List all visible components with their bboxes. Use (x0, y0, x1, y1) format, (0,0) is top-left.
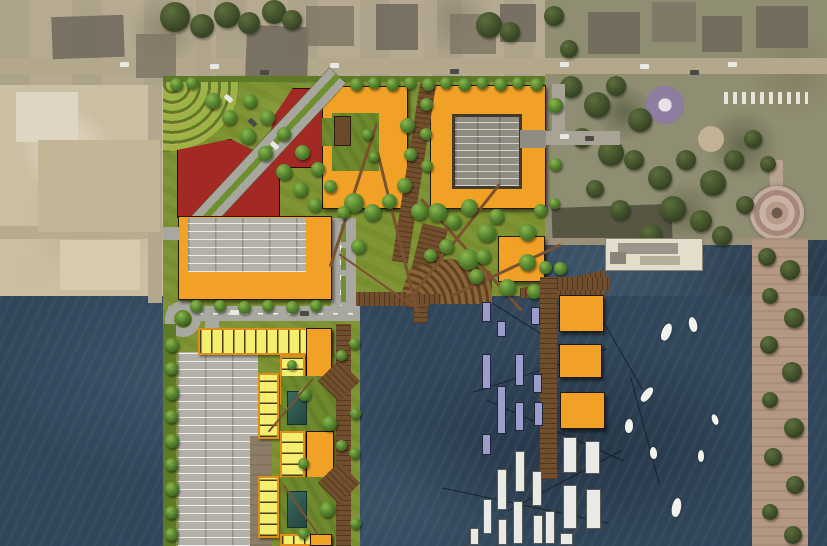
marina-building (559, 295, 604, 332)
boat-slip-white (563, 485, 577, 529)
boat-slip-white (497, 469, 507, 510)
boat-slip-lavender (531, 307, 540, 325)
boat-slip-lavender (482, 302, 491, 322)
boat-slip-white (483, 499, 492, 534)
boat-slip-white (545, 511, 555, 544)
marina-pier (540, 277, 557, 479)
boat-slip-white (533, 515, 543, 544)
boat-slip-white (470, 528, 479, 545)
boat-slip-lavender (534, 402, 543, 426)
boat-slip-white (513, 501, 523, 544)
marina-building (559, 344, 602, 378)
boat-slip-white (515, 451, 525, 492)
boat-slip-white (563, 437, 577, 473)
boat-slip-white (560, 533, 573, 545)
site-plan-aerial-rendering (0, 0, 827, 546)
marina (0, 0, 827, 546)
boat-slip-lavender (497, 321, 506, 337)
boat-slip-white (532, 471, 542, 506)
boat-slip-white (586, 489, 601, 529)
boat-slip-lavender (482, 434, 491, 455)
boat-slip-lavender (515, 402, 524, 431)
boat-slip-lavender (497, 386, 506, 434)
boat-slip-lavender (533, 374, 542, 393)
boat-slip-lavender (482, 354, 491, 389)
boat-slip-white (498, 519, 507, 545)
marina-building (560, 392, 605, 429)
boat-slip-white (585, 441, 600, 474)
marina-pier-arm (557, 277, 609, 290)
boat-slip-lavender (515, 354, 524, 386)
